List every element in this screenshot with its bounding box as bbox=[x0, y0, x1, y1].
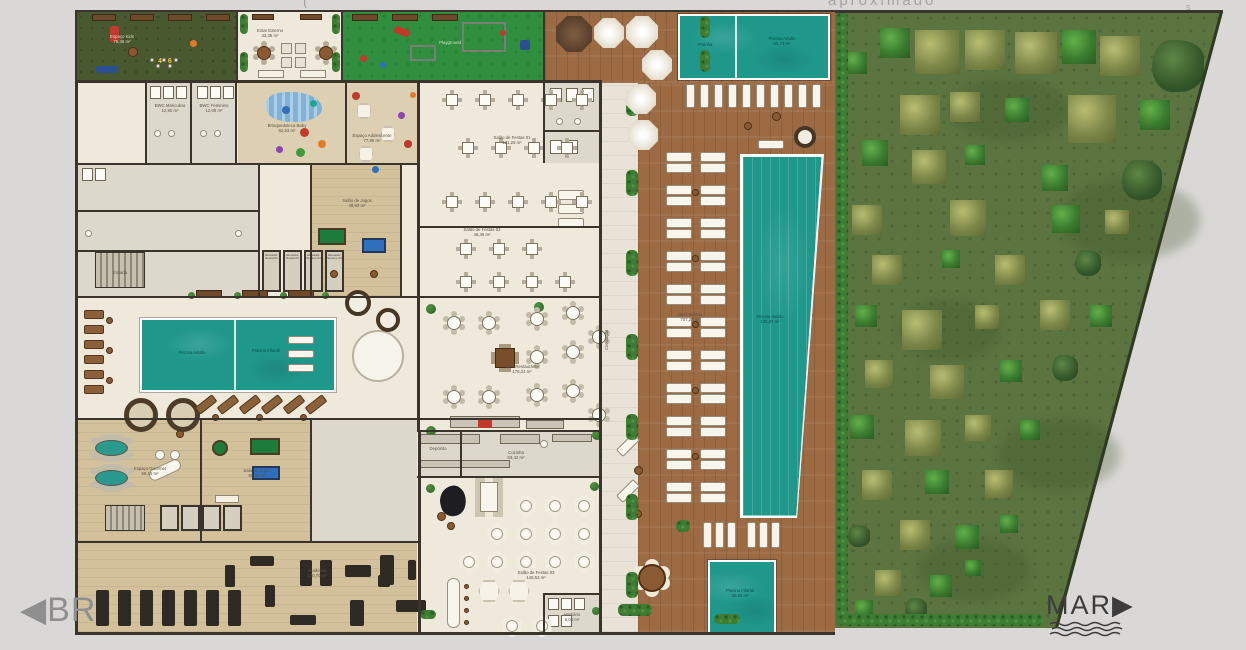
table-flower bbox=[520, 556, 532, 568]
play-structure bbox=[520, 40, 530, 50]
wall bbox=[543, 83, 545, 163]
tree bbox=[862, 470, 892, 500]
tree bbox=[1020, 420, 1040, 440]
play-rug bbox=[266, 92, 322, 122]
stool bbox=[200, 130, 207, 137]
wall bbox=[543, 593, 545, 633]
tree bbox=[1105, 210, 1129, 234]
wall bbox=[418, 432, 421, 635]
climbing-frame bbox=[462, 22, 506, 52]
bathroom-stall bbox=[561, 598, 572, 610]
side-table bbox=[692, 453, 699, 460]
hedge bbox=[626, 250, 638, 276]
tree bbox=[1068, 95, 1116, 143]
tree bbox=[1005, 98, 1029, 122]
lounger bbox=[798, 84, 807, 108]
lounger bbox=[700, 449, 726, 459]
lounger bbox=[770, 84, 779, 108]
planter-shrub bbox=[590, 482, 599, 491]
side-table bbox=[692, 387, 699, 394]
tree bbox=[1062, 30, 1096, 64]
top-paren-fragment: ( bbox=[303, 0, 323, 8]
toy bbox=[500, 30, 506, 36]
side-table bbox=[692, 255, 699, 262]
room-label-salao1: Salão de Festas 01121,29 m² bbox=[477, 135, 547, 145]
table-square bbox=[479, 196, 491, 208]
table-flower bbox=[578, 500, 590, 512]
lounger bbox=[700, 262, 726, 272]
hedge bbox=[626, 334, 638, 360]
wall bbox=[345, 83, 347, 163]
toy bbox=[360, 55, 367, 62]
table-square bbox=[493, 243, 505, 255]
tree bbox=[995, 255, 1025, 285]
lounger bbox=[666, 416, 692, 426]
tree bbox=[950, 200, 986, 236]
side-table bbox=[106, 377, 113, 384]
table-square bbox=[479, 94, 491, 106]
tree bbox=[930, 365, 964, 399]
palm-tree bbox=[848, 525, 870, 547]
table-square bbox=[561, 142, 573, 154]
lounger bbox=[700, 328, 726, 338]
stool bbox=[540, 440, 548, 448]
side-table bbox=[330, 270, 338, 278]
wall bbox=[77, 541, 419, 543]
room-label-vestiario: Vestiário6,04 m² bbox=[547, 612, 597, 622]
lounger bbox=[700, 350, 726, 360]
gym-equipment bbox=[162, 590, 175, 626]
room-label-bwc-fem: BWC Feminino12,08 m² bbox=[192, 103, 236, 113]
stool bbox=[155, 450, 165, 460]
planter-shrub bbox=[426, 484, 435, 493]
toy bbox=[276, 146, 283, 153]
side-table bbox=[692, 189, 699, 196]
wall bbox=[417, 83, 420, 432]
sea-waves-icon bbox=[1048, 620, 1128, 643]
room-label-playground: Playground bbox=[420, 40, 480, 45]
table-flower bbox=[506, 620, 518, 632]
lounger bbox=[700, 493, 726, 503]
bench bbox=[130, 14, 154, 21]
tree bbox=[852, 205, 882, 235]
lounger bbox=[700, 394, 726, 404]
bench bbox=[252, 14, 274, 20]
table-round bbox=[482, 390, 496, 404]
table-flower bbox=[463, 556, 475, 568]
plant bbox=[296, 148, 305, 157]
wall bbox=[417, 296, 600, 298]
table-round bbox=[566, 306, 580, 320]
stool bbox=[574, 118, 581, 125]
staircase bbox=[105, 505, 145, 531]
tree bbox=[1000, 360, 1022, 382]
tree bbox=[1052, 205, 1080, 233]
hedge bbox=[836, 12, 848, 626]
toy bbox=[352, 92, 360, 100]
toy bbox=[190, 40, 197, 47]
gym-equipment bbox=[118, 590, 131, 626]
tree bbox=[1015, 32, 1057, 74]
bench bbox=[392, 14, 418, 21]
elevator-label: Elevador Serviço 01 bbox=[306, 252, 321, 290]
pool-divider bbox=[735, 16, 737, 78]
wall bbox=[236, 10, 238, 82]
wall bbox=[310, 165, 312, 296]
lounger bbox=[666, 251, 692, 261]
lounger bbox=[666, 460, 692, 470]
table-square bbox=[460, 243, 472, 255]
lounger bbox=[84, 385, 104, 394]
tree bbox=[880, 28, 910, 58]
gym-equipment bbox=[265, 585, 275, 607]
tree bbox=[925, 470, 949, 494]
compass-br-label: ◀BR bbox=[20, 590, 96, 630]
lounger bbox=[812, 84, 821, 108]
table-round bbox=[530, 312, 544, 326]
wall bbox=[310, 420, 312, 541]
gym-equipment bbox=[378, 575, 390, 587]
hedge bbox=[332, 52, 340, 72]
gym-equipment bbox=[408, 560, 416, 580]
hedge bbox=[676, 520, 690, 532]
lounger bbox=[700, 482, 726, 492]
side-table bbox=[447, 522, 455, 530]
lounger bbox=[288, 364, 314, 372]
ofuro-tub bbox=[345, 290, 371, 316]
room-label-jogos1: Salão de Jogos48,93 m² bbox=[327, 198, 387, 208]
lounger bbox=[686, 84, 695, 108]
gym-equipment bbox=[225, 565, 235, 587]
lounger bbox=[666, 427, 692, 437]
lounger bbox=[700, 196, 726, 206]
pool-table bbox=[318, 228, 346, 245]
side-table bbox=[744, 122, 752, 130]
elevator-cell: Elevador Social 02 bbox=[283, 250, 302, 292]
tree bbox=[942, 250, 960, 268]
table-round bbox=[530, 388, 544, 402]
table-flower bbox=[549, 528, 561, 540]
tree bbox=[915, 30, 959, 74]
toy bbox=[404, 140, 412, 148]
bench bbox=[432, 14, 458, 21]
stool bbox=[85, 230, 92, 237]
bathroom-stall bbox=[95, 168, 106, 181]
lounger bbox=[288, 350, 314, 358]
lounger bbox=[715, 522, 724, 548]
lounger bbox=[700, 163, 726, 173]
elevator-cell bbox=[181, 505, 200, 531]
room-label-brinquedoteca: Brinquedoteca Baby62,53 m² bbox=[255, 123, 319, 133]
kitchen-counter bbox=[500, 434, 540, 444]
lounger bbox=[771, 522, 780, 548]
toy bbox=[310, 100, 317, 107]
top-annotation-fragment: aproximado bbox=[828, 0, 1128, 9]
tree bbox=[900, 95, 940, 135]
lounger bbox=[700, 229, 726, 239]
lounger bbox=[666, 152, 692, 162]
card-table bbox=[212, 440, 228, 456]
table-flower bbox=[520, 500, 532, 512]
pool-label-indoor-adult: Piscina Adulto bbox=[167, 350, 217, 355]
table-flower bbox=[549, 556, 561, 568]
tree bbox=[855, 305, 877, 327]
hedge bbox=[626, 494, 638, 520]
hopscotch-numbers: 4 6 bbox=[158, 58, 174, 65]
tree bbox=[975, 305, 999, 329]
gym-equipment bbox=[206, 590, 219, 626]
kitchen-counter bbox=[552, 434, 592, 442]
wall bbox=[545, 10, 835, 12]
tree bbox=[902, 310, 942, 350]
side-table bbox=[106, 347, 113, 354]
tree bbox=[965, 415, 991, 441]
table-square bbox=[545, 196, 557, 208]
floor-plan-canvas: Elevador Social 01 Elevador Social 02 El… bbox=[0, 0, 1246, 650]
elevator-label: Elevador Social 02 bbox=[285, 252, 300, 290]
stool bbox=[150, 58, 154, 62]
lounger bbox=[758, 140, 784, 149]
wall bbox=[75, 10, 77, 82]
umbrella-icon bbox=[556, 16, 592, 52]
stool bbox=[556, 118, 563, 125]
lounger bbox=[666, 218, 692, 228]
wall bbox=[417, 476, 600, 478]
toy bbox=[318, 140, 326, 148]
side-table bbox=[772, 112, 781, 121]
gym-equipment bbox=[140, 590, 153, 626]
hedge bbox=[714, 614, 740, 624]
lounger bbox=[666, 493, 692, 503]
side-table bbox=[634, 466, 643, 475]
palm-tree bbox=[1052, 355, 1078, 381]
wall bbox=[145, 83, 147, 163]
room-label-escada: Escada bbox=[100, 270, 140, 275]
wall bbox=[77, 296, 417, 298]
side-table bbox=[370, 270, 378, 278]
stool bbox=[214, 130, 221, 137]
tree bbox=[965, 30, 1005, 70]
lounger bbox=[666, 449, 692, 459]
hedge bbox=[838, 614, 1043, 626]
hedge bbox=[626, 414, 638, 440]
tree bbox=[965, 145, 985, 165]
toy bbox=[410, 92, 416, 98]
lounger bbox=[700, 427, 726, 437]
toy bbox=[282, 106, 290, 114]
tree bbox=[865, 360, 893, 388]
room-label-salao2: Salão de Festas 0246,46 m² bbox=[447, 227, 517, 237]
kitchen-counter bbox=[526, 420, 564, 429]
table-square bbox=[446, 94, 458, 106]
palm-tree bbox=[1152, 40, 1204, 92]
lounger bbox=[666, 328, 692, 338]
lounger bbox=[84, 370, 104, 379]
side-table bbox=[128, 47, 138, 57]
stool bbox=[174, 58, 178, 62]
room-label-cozinha: Cozinha53,42 m² bbox=[486, 450, 546, 460]
tree bbox=[1042, 165, 1068, 191]
planter-shrub bbox=[534, 302, 544, 312]
wall bbox=[417, 430, 600, 432]
planter-shrub bbox=[426, 304, 436, 314]
wall bbox=[545, 130, 600, 132]
counter bbox=[447, 578, 460, 628]
lounger bbox=[759, 522, 768, 548]
room-label-deposito: Depósito bbox=[418, 446, 458, 451]
deck-dining-table bbox=[638, 564, 666, 592]
pool-label-kids-outdoor: Piscina Infantil20,84 m² bbox=[715, 588, 765, 598]
toy bbox=[398, 112, 405, 119]
side-table bbox=[437, 512, 446, 521]
elevator-cell bbox=[223, 505, 242, 531]
hedge bbox=[700, 50, 710, 72]
wall bbox=[599, 80, 602, 635]
lounger bbox=[84, 355, 104, 364]
tree bbox=[955, 525, 979, 549]
wall bbox=[400, 165, 402, 296]
tree bbox=[900, 520, 930, 550]
play-structure bbox=[96, 66, 118, 73]
bench bbox=[215, 495, 239, 503]
palm-tree bbox=[1122, 160, 1162, 200]
umbrella-icon bbox=[642, 50, 672, 80]
tree bbox=[985, 470, 1013, 498]
hedge bbox=[626, 170, 638, 196]
table-square bbox=[576, 196, 588, 208]
table-round bbox=[566, 345, 580, 359]
ofuro-tub bbox=[376, 308, 400, 332]
lounger bbox=[84, 340, 104, 349]
room-floor-tile bbox=[312, 420, 417, 541]
spa-tub bbox=[166, 398, 200, 432]
stool bbox=[168, 130, 175, 137]
table-square bbox=[545, 94, 557, 106]
gym-equipment bbox=[290, 615, 316, 625]
lounger bbox=[700, 84, 709, 108]
pool-divider bbox=[234, 320, 236, 390]
table-round bbox=[530, 350, 544, 364]
table-flower bbox=[491, 556, 503, 568]
table-flower bbox=[491, 528, 503, 540]
gym-equipment bbox=[250, 556, 274, 566]
dining-table bbox=[480, 482, 498, 512]
stool bbox=[154, 130, 161, 137]
umbrella-icon bbox=[626, 84, 656, 114]
umbrella-icon bbox=[594, 18, 624, 48]
bench bbox=[92, 14, 116, 21]
toy bbox=[372, 166, 379, 173]
lounger bbox=[666, 482, 692, 492]
table-square bbox=[512, 94, 524, 106]
room-label-kids: Espaço Kids75,36 m² bbox=[87, 34, 157, 44]
hedge bbox=[618, 604, 652, 616]
lounger bbox=[700, 416, 726, 426]
wall bbox=[258, 165, 260, 296]
wall bbox=[602, 632, 835, 635]
table-round bbox=[447, 316, 461, 330]
wall bbox=[75, 80, 600, 83]
bench bbox=[258, 70, 284, 78]
table-small bbox=[295, 57, 306, 68]
ofuro-tub bbox=[794, 126, 816, 148]
lounger bbox=[666, 229, 692, 239]
lounger bbox=[288, 336, 314, 344]
lounger bbox=[666, 262, 692, 272]
table-square bbox=[462, 142, 474, 154]
room-label-salao3: Salão de Festas 03145,52 m² bbox=[501, 570, 571, 580]
tree bbox=[850, 415, 874, 439]
lounger bbox=[666, 295, 692, 305]
table-square bbox=[446, 196, 458, 208]
lounger bbox=[700, 383, 726, 393]
room-label-gourmet: Espaço Gourmet59,10 m² bbox=[122, 466, 178, 476]
bathroom-stall bbox=[210, 86, 221, 99]
lounger bbox=[700, 460, 726, 470]
hedge bbox=[626, 572, 638, 598]
elevator-cell: Elevador Serviço 01 bbox=[304, 250, 323, 292]
tree bbox=[1000, 515, 1018, 533]
table-flower bbox=[578, 528, 590, 540]
spa-tub bbox=[124, 398, 158, 432]
bathroom-stall bbox=[176, 86, 187, 99]
table-round bbox=[482, 316, 496, 330]
table-small bbox=[281, 43, 292, 54]
elevator-label: Elevador Social 01 bbox=[264, 252, 279, 290]
table-round bbox=[447, 390, 461, 404]
lounger bbox=[714, 84, 723, 108]
tree bbox=[862, 140, 888, 166]
room-label-restaurante: Bar / Restaurante175,31 m² bbox=[487, 364, 557, 374]
elevator-cell bbox=[202, 505, 221, 531]
bathroom-stall bbox=[548, 598, 559, 610]
table-small bbox=[295, 43, 306, 54]
wall bbox=[75, 10, 545, 12]
lounger bbox=[666, 361, 692, 371]
table-square bbox=[493, 276, 505, 288]
bench bbox=[300, 14, 322, 20]
table-square bbox=[576, 94, 588, 106]
wall bbox=[75, 632, 602, 635]
table-flower bbox=[549, 500, 561, 512]
bench bbox=[300, 70, 326, 78]
table-flower bbox=[578, 556, 590, 568]
lounger bbox=[666, 284, 692, 294]
gym-equipment bbox=[184, 590, 197, 626]
bench bbox=[168, 14, 192, 21]
kitchen-counter bbox=[420, 460, 510, 468]
table-square bbox=[512, 196, 524, 208]
tree bbox=[965, 560, 981, 576]
wall bbox=[341, 10, 343, 82]
pool-label-top-adult: Piscina Adulto60,73 m² bbox=[757, 36, 807, 46]
lounger bbox=[756, 84, 765, 108]
elevator-cell bbox=[160, 505, 179, 531]
lounger bbox=[666, 196, 692, 206]
gym-equipment bbox=[345, 565, 371, 577]
bathroom-stall bbox=[163, 86, 174, 99]
room-label-jogos2: Sala de Jogos65,46 m² bbox=[227, 468, 287, 478]
playground-lawn bbox=[343, 12, 543, 80]
lounger bbox=[666, 383, 692, 393]
gym-equipment bbox=[96, 590, 109, 626]
table-round bbox=[566, 384, 580, 398]
wall bbox=[77, 163, 417, 165]
wall bbox=[835, 10, 1223, 13]
hedge bbox=[332, 14, 340, 34]
pool-alcove bbox=[352, 330, 404, 382]
wall bbox=[543, 10, 545, 82]
